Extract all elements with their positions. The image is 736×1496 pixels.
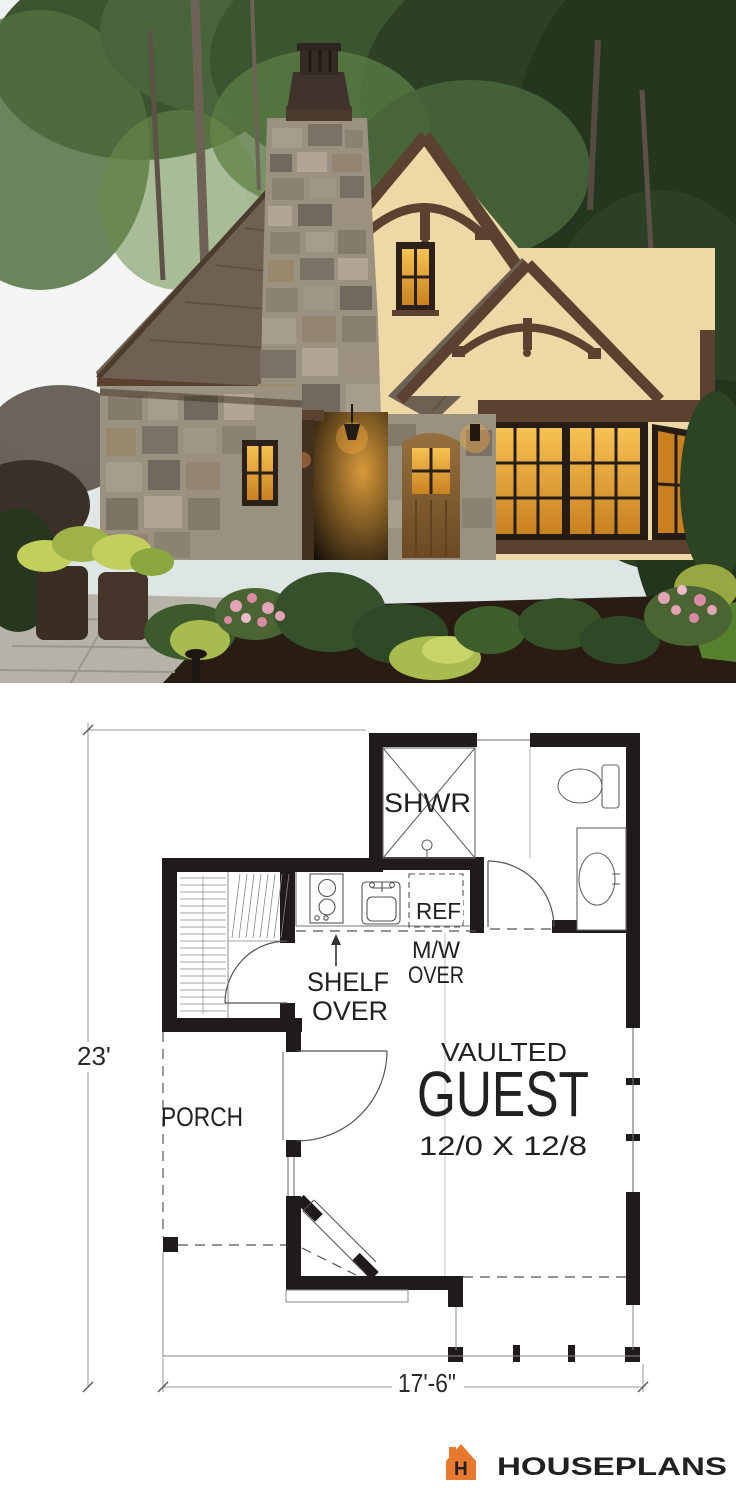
dim-front: 17'-6" — [398, 1368, 456, 1398]
entry-porch — [278, 404, 496, 560]
gable-window — [392, 242, 439, 316]
deck-lines — [163, 1252, 640, 1357]
plan-walls — [162, 733, 640, 1362]
label-room-size: 12/0 X 12/8 — [419, 1131, 587, 1161]
kitchen-sink-icon — [362, 882, 400, 924]
shelf-arrow-icon — [331, 934, 341, 966]
label-guest: GUEST — [417, 1058, 589, 1130]
label-shelf-2: OVER — [312, 996, 388, 1026]
label-ref: REF — [416, 898, 461, 924]
closet — [180, 872, 289, 1018]
logo-wordmark: HOUSEPLANS — [497, 1453, 727, 1481]
pinterest-pin-image: SHWR REF M/W OVER SHELF OVER PORCH VAULT… — [0, 0, 736, 1496]
cooktop-icon — [310, 874, 343, 923]
corner-fireplace — [296, 1195, 379, 1280]
vanity-sink-icon — [577, 828, 626, 930]
label-mw-1: M/W — [412, 937, 460, 964]
wall-sconce-icon — [470, 424, 480, 441]
label-shelf-1: SHELF — [307, 967, 389, 997]
label-shwr: SHWR — [384, 788, 471, 818]
dim-side: 23' — [77, 1041, 111, 1071]
bay-window — [480, 422, 710, 554]
wing-window — [242, 440, 278, 506]
stone-wing — [100, 386, 302, 560]
bay-header-band — [478, 400, 710, 422]
plan-labels: SHWR REF M/W OVER SHELF OVER PORCH VAULT… — [77, 788, 589, 1398]
label-porch: PORCH — [161, 1102, 243, 1132]
logo-icon-letter: H — [454, 1459, 468, 1480]
cottage-photo — [0, 0, 736, 684]
bay-sill-band — [480, 540, 710, 554]
houseplans-logo: H HOUSEPLANS — [446, 1444, 727, 1481]
label-mw-2: OVER — [408, 962, 464, 989]
toilet-icon — [558, 765, 619, 808]
composite-image: SHWR REF M/W OVER SHELF OVER PORCH VAULT… — [0, 0, 736, 1496]
floor-plan: SHWR REF M/W OVER SHELF OVER PORCH VAULT… — [72, 723, 648, 1398]
